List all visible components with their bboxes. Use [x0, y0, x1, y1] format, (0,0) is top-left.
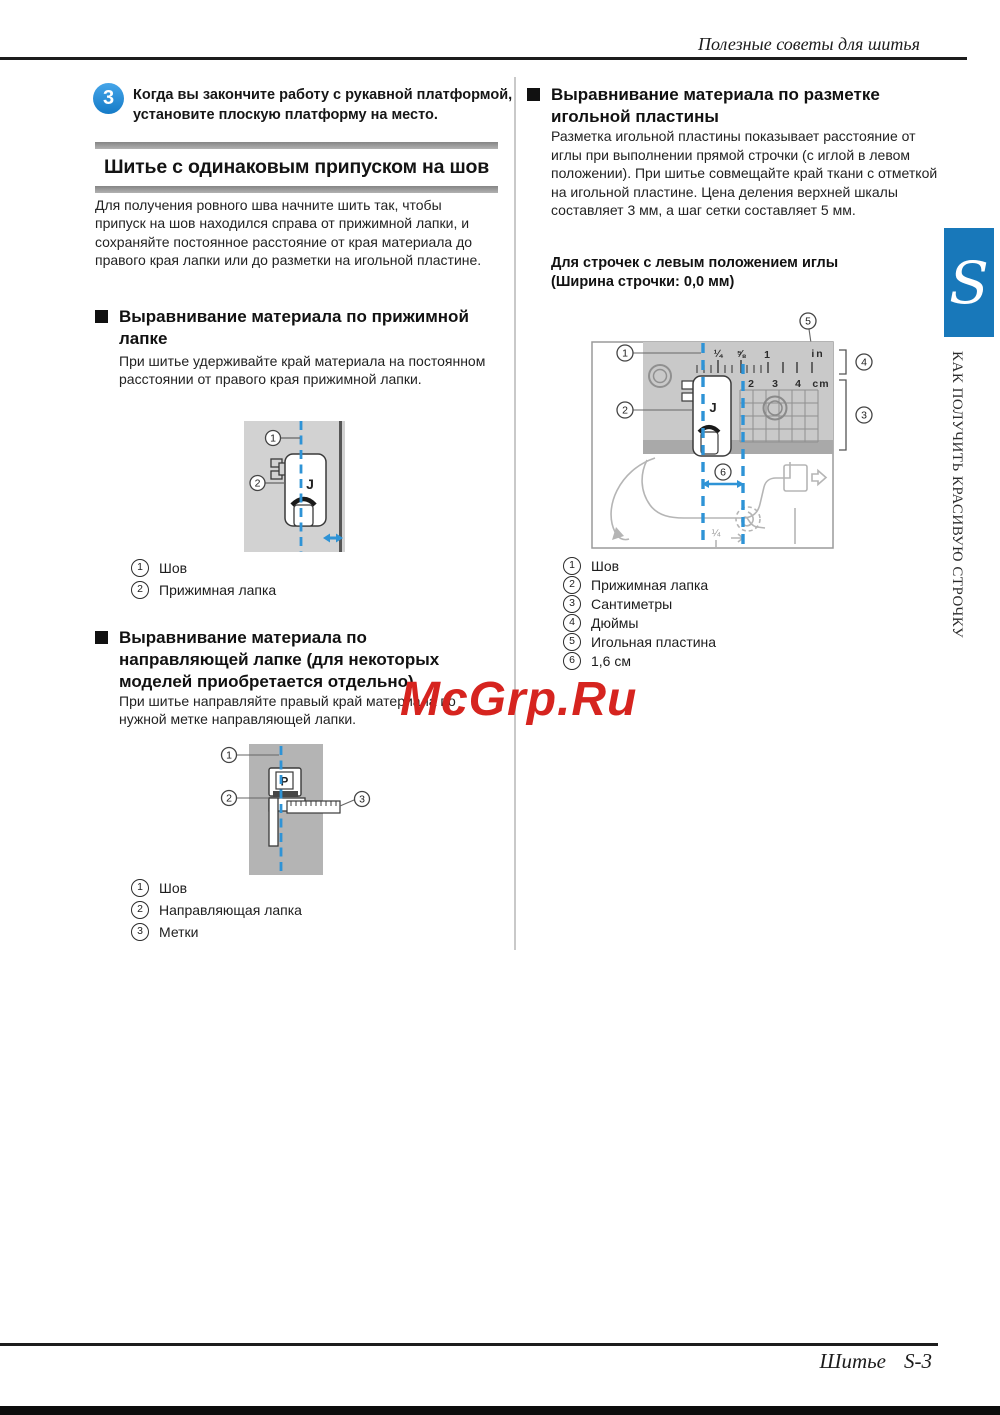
legend-item: 4 Дюймы — [563, 615, 716, 632]
foot-letter: J — [306, 476, 314, 492]
needle-plate-heading: Выравнивание материала по разметке иголь… — [551, 84, 896, 128]
legend-item: 2 Прижимная лапка — [131, 581, 276, 598]
svg-text:3: 3 — [772, 378, 778, 390]
section-title-block: Шитье с одинаковым припуском на шов — [95, 142, 498, 193]
legend-num: 5 — [563, 633, 581, 651]
legend-num: 6 — [563, 652, 581, 670]
heading-square-icon — [527, 88, 540, 101]
footer-page-number: S-3 — [904, 1349, 932, 1373]
section-title: Шитье с одинаковым припуском на шов — [95, 149, 498, 186]
chapter-vertical-title: КАК ПОЛУЧИТЬ КРАСИВУЮ СТРОЧКУ — [948, 351, 965, 683]
needle-plate-heading-text: Выравнивание материала по разметке иголь… — [551, 85, 880, 126]
svg-text:2: 2 — [748, 378, 754, 390]
legend-label: Метки — [159, 924, 199, 940]
legend-num: 1 — [131, 559, 149, 577]
guide-foot-legend: 1 Шов 2 Направляющая лапка 3 Метки — [131, 879, 302, 945]
guide-ruler — [287, 801, 340, 813]
legend-item: 1 Шов — [131, 559, 276, 576]
legend-item: 3 Метки — [131, 923, 302, 940]
heading-square-icon — [95, 631, 108, 644]
svg-text:2: 2 — [622, 405, 628, 417]
legend-label: Шов — [591, 558, 619, 574]
svg-text:4: 4 — [795, 378, 801, 390]
legend-item: 1 Шов — [563, 557, 716, 574]
guide-foot-diagram: P 1 2 3 — [210, 742, 390, 877]
needle-plate-diagram: 5 ¼ ⅝ 1 in 2 3 4 cm — [585, 312, 890, 552]
foot-letter: J — [709, 400, 716, 415]
legend-item: 2 Направляющая лапка — [131, 901, 302, 918]
section-intro: Для получения ровного шва начните шить т… — [95, 196, 495, 269]
page-bottom-bar — [0, 1406, 1000, 1415]
press-foot-heading-text: Выравнивание материала по прижимной лапк… — [119, 307, 469, 348]
press-foot-body: При шитье удерживайте край материала на … — [119, 352, 491, 389]
legend-num: 1 — [563, 557, 581, 575]
svg-text:cm: cm — [812, 378, 829, 390]
svg-text:6: 6 — [720, 467, 726, 479]
footer-rule — [0, 1343, 938, 1346]
section-bar-bottom — [95, 186, 498, 193]
legend-num: 4 — [563, 614, 581, 632]
svg-text:2: 2 — [226, 793, 232, 805]
manual-page: Полезные советы для шитья 3 Когда вы зак… — [0, 0, 1000, 1415]
press-foot-diagram: J 1 2 — [244, 421, 345, 552]
chapter-tab: S — [944, 228, 994, 337]
press-foot-legend: 1 Шов 2 Прижимная лапка — [131, 559, 276, 603]
legend-label: 1,6 см — [591, 653, 631, 669]
legend-label: Шов — [159, 880, 187, 896]
legend-label: Прижимная лапка — [159, 582, 276, 598]
legend-item: 2 Прижимная лапка — [563, 576, 716, 593]
needle-plate-body: Разметка игольной пластины показывает ра… — [551, 127, 945, 220]
press-foot-heading: Выравнивание материала по прижимной лапк… — [119, 306, 469, 350]
svg-text:1: 1 — [226, 750, 232, 762]
svg-text:4: 4 — [861, 357, 867, 369]
footer-chapter-label: Шитье — [820, 1349, 886, 1373]
legend-item: 5 Игольная пластина — [563, 634, 716, 651]
legend-num: 3 — [131, 923, 149, 941]
heading-square-icon — [95, 310, 108, 323]
page-footer: ШитьеS-3 — [700, 1349, 932, 1374]
legend-num: 3 — [563, 595, 581, 613]
watermark: McGrp.Ru — [400, 672, 637, 727]
step-text: Когда вы закончите работу с рукавной пла… — [133, 85, 525, 125]
svg-text:¼: ¼ — [712, 527, 721, 539]
foot-toe — [294, 505, 313, 526]
svg-text:1: 1 — [622, 348, 628, 360]
svg-text:2: 2 — [255, 478, 261, 490]
legend-num: 2 — [131, 581, 149, 599]
legend-item: 1 Шов — [131, 879, 302, 896]
svg-text:3: 3 — [861, 410, 867, 422]
svg-text:⅝: ⅝ — [737, 348, 747, 360]
svg-text:1: 1 — [270, 433, 276, 445]
page-header-title: Полезные советы для шитья — [698, 34, 920, 55]
legend-label: Сантиметры — [591, 596, 672, 612]
section-bar-top — [95, 142, 498, 149]
step-number-badge: 3 — [93, 83, 124, 114]
legend-label: Прижимная лапка — [591, 577, 708, 593]
callout-3: 3 — [839, 380, 872, 450]
svg-text:3: 3 — [359, 794, 365, 806]
header-rule — [0, 57, 967, 60]
guide-foot-heading-text: Выравнивание материала по направляющей л… — [119, 628, 439, 691]
column-divider — [514, 77, 516, 950]
legend-label: Игольная пластина — [591, 634, 716, 650]
callout-4: 4 — [839, 350, 872, 374]
legend-label: Дюймы — [591, 615, 639, 631]
callout-3: 3 — [340, 792, 370, 807]
needle-plate-legend: 1 Шов 2 Прижимная лапка 3 Сантиметры 4 Д… — [563, 557, 716, 672]
svg-text:¼: ¼ — [714, 348, 724, 360]
legend-num: 1 — [131, 879, 149, 897]
chapter-tab-letter: S — [944, 236, 994, 331]
legend-label: Шов — [159, 560, 187, 576]
legend-label: Направляющая лапка — [159, 902, 302, 918]
svg-text:1: 1 — [764, 349, 770, 361]
legend-num: 2 — [563, 576, 581, 594]
legend-item: 3 Сантиметры — [563, 595, 716, 612]
svg-text:5: 5 — [805, 316, 811, 328]
legend-num: 2 — [131, 901, 149, 919]
legend-item: 6 1,6 см — [563, 653, 716, 670]
svg-text:in: in — [811, 348, 824, 360]
needle-plate-subhead: Для строчек с левым положением иглы (Шир… — [551, 254, 861, 292]
